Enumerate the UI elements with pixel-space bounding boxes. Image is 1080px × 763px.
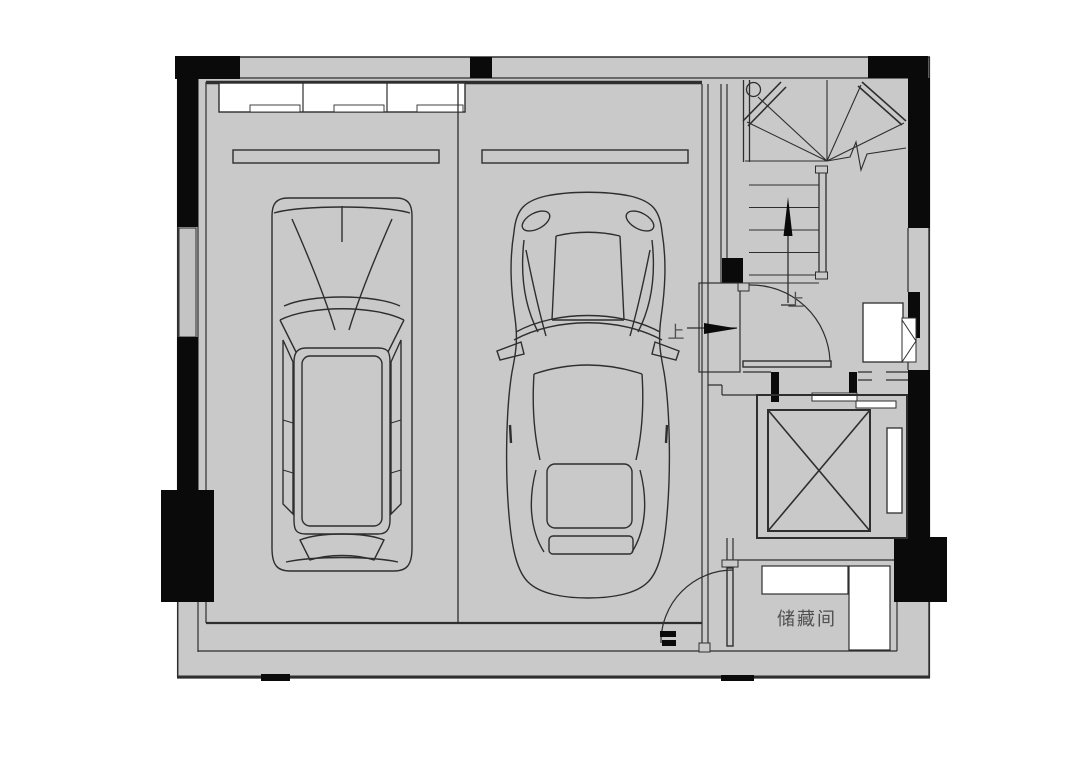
storage-shelf-right — [849, 566, 890, 650]
column-bottom-left — [161, 490, 214, 602]
floor-plan: 上 上 储藏间 — [0, 0, 1080, 763]
stair-handrail-cap-bottom — [816, 272, 828, 279]
door-up-label: 上 — [788, 291, 805, 311]
storage-shelf-top — [762, 566, 848, 594]
sports-body — [507, 192, 670, 598]
lobby-wall-notch — [872, 371, 886, 382]
floor-plan-canvas: 上 上 储藏间 — [0, 0, 1080, 763]
storage-door-stop-1 — [660, 631, 676, 637]
storage-room-label: 储藏间 — [777, 609, 837, 630]
wall-right-lower — [908, 370, 930, 538]
column-top-right — [868, 56, 928, 78]
entry-up-label: 上 — [668, 323, 685, 343]
storage-door-jamb — [722, 560, 738, 567]
stair-handrail-cap-top — [816, 166, 828, 173]
sports-car — [497, 192, 679, 598]
left-wall-window — [179, 228, 196, 337]
cabinet-notch-2 — [334, 105, 384, 112]
wheel-stop-right — [482, 150, 688, 163]
storage-door-leaf — [727, 568, 733, 646]
entry-door-leaf — [743, 361, 831, 367]
column-top-middle — [470, 57, 492, 78]
side-window-casement — [902, 318, 916, 362]
suv-car — [272, 198, 412, 571]
storage-door-stop-2 — [662, 640, 676, 646]
wall-right-upper — [908, 78, 930, 228]
lobby-jamb-left — [771, 372, 779, 402]
column-top-left — [175, 56, 240, 79]
wall-left-mid — [177, 337, 198, 490]
cabinet-row — [219, 83, 465, 112]
wheel-stop-left — [233, 150, 439, 163]
bottom-threshold-mark-left — [261, 674, 290, 681]
elevator-door — [887, 428, 902, 513]
wall-left-upper — [177, 78, 198, 227]
lobby-shelf-2 — [856, 401, 896, 408]
column-bottom-right — [894, 537, 947, 602]
side-window-panel — [863, 303, 903, 362]
cabinet-notch-3 — [417, 105, 463, 112]
cabinet-notch-1 — [250, 105, 300, 112]
storage-wall-step — [699, 643, 710, 652]
entry-door-jamb — [738, 283, 749, 291]
entry-column — [722, 258, 743, 283]
bottom-threshold-mark-right — [721, 675, 754, 681]
